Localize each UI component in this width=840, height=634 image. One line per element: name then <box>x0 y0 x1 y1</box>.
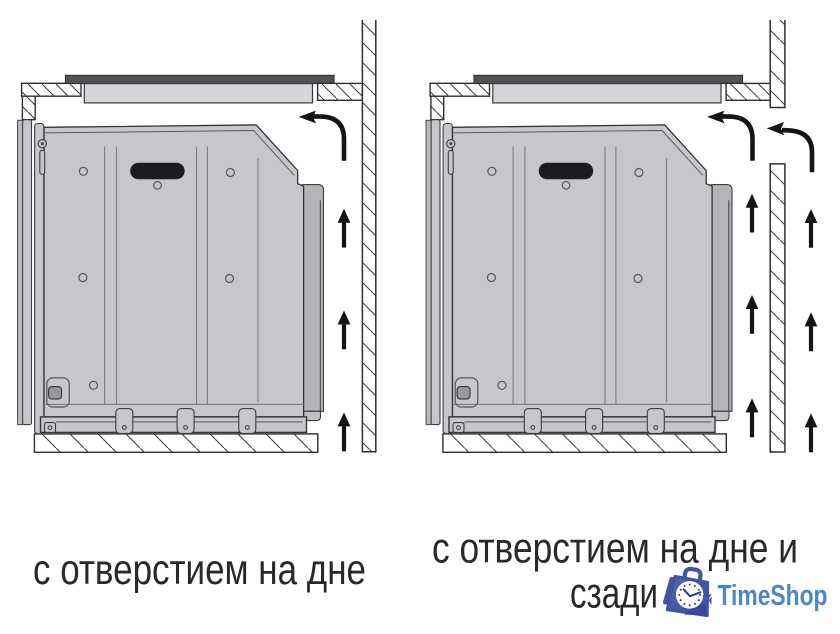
svg-text:TimeShop: TimeShop <box>718 580 828 612</box>
svg-text:сзади: сзади <box>570 570 658 618</box>
svg-text:с отверстием на дне и: с отверстием на дне и <box>432 525 798 573</box>
svg-text:с отверстием на дне: с отверстием на дне <box>33 546 366 594</box>
